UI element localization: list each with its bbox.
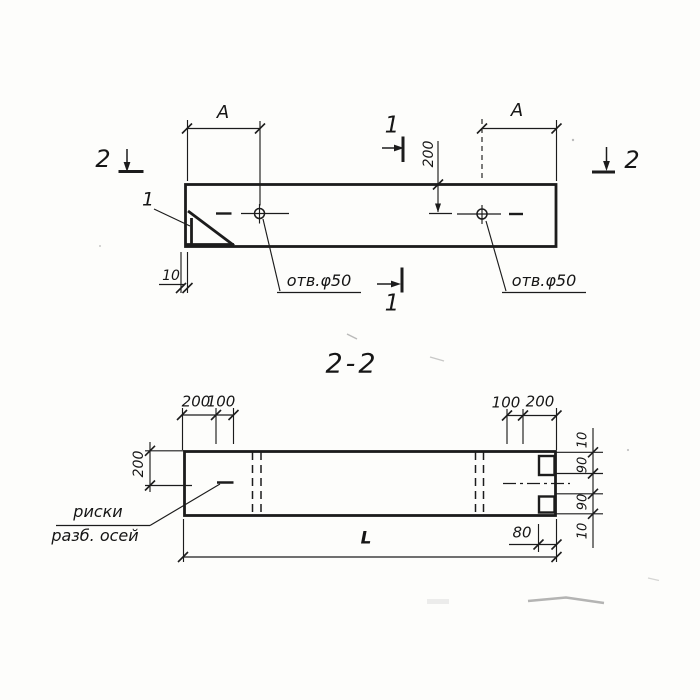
dim-label-10-top: 10 — [577, 432, 590, 449]
cut1-bottom-arrow — [391, 281, 401, 288]
hole-callout-right: отв.φ50 — [512, 273, 577, 289]
lower-notch — [539, 497, 555, 513]
section-title: 2-2 — [325, 351, 378, 378]
dim-label-length: L — [361, 531, 372, 548]
upper-notch — [539, 456, 555, 475]
technical-drawing-canvas: A A 1 1 2 2 1 200 отв.φ50 отв.φ50 10 2-2… — [0, 0, 700, 700]
dim-label-200-top-right: 200 — [526, 395, 555, 410]
dim-label-80: 80 — [512, 526, 531, 541]
cut2-right-label: 2 — [624, 148, 639, 172]
cut2-right-arrow — [603, 161, 610, 171]
dim-label-200-plan: 200 — [422, 141, 436, 168]
dim-label-a-right: A — [511, 102, 523, 120]
dim200-arrow — [435, 204, 441, 213]
hole-callout-left: отв.φ50 — [287, 273, 352, 289]
dim-label-10-bottom: 10 — [577, 523, 590, 540]
dimension-ticks — [145, 124, 598, 563]
dim-label-200-side: 200 — [132, 451, 146, 478]
dim-label-100-top-left: 100 — [207, 395, 236, 410]
dim-label-10-plan: 10 — [162, 269, 180, 283]
cut1-bottom-label: 1 — [385, 293, 400, 316]
cut1-top-label: 1 — [385, 115, 400, 138]
hole-circles — [255, 209, 488, 220]
dim-label-90-lower: 90 — [577, 494, 590, 511]
corner-detail-triangle-hypotenuse — [188, 211, 234, 246]
cut2-left-label: 2 — [95, 147, 110, 171]
dim-label-100-top-right: 100 — [492, 396, 521, 411]
dim-label-90-upper: 90 — [577, 457, 590, 474]
dim-label-a-left: A — [217, 104, 229, 122]
axis-note-line2: разб. осей — [51, 528, 138, 544]
plan-view-outline — [186, 185, 557, 247]
section-notches — [539, 456, 555, 513]
section-view-outline — [185, 452, 556, 516]
detail-mark-label: 1 — [142, 191, 154, 210]
axis-note-line1: риски — [73, 504, 122, 520]
